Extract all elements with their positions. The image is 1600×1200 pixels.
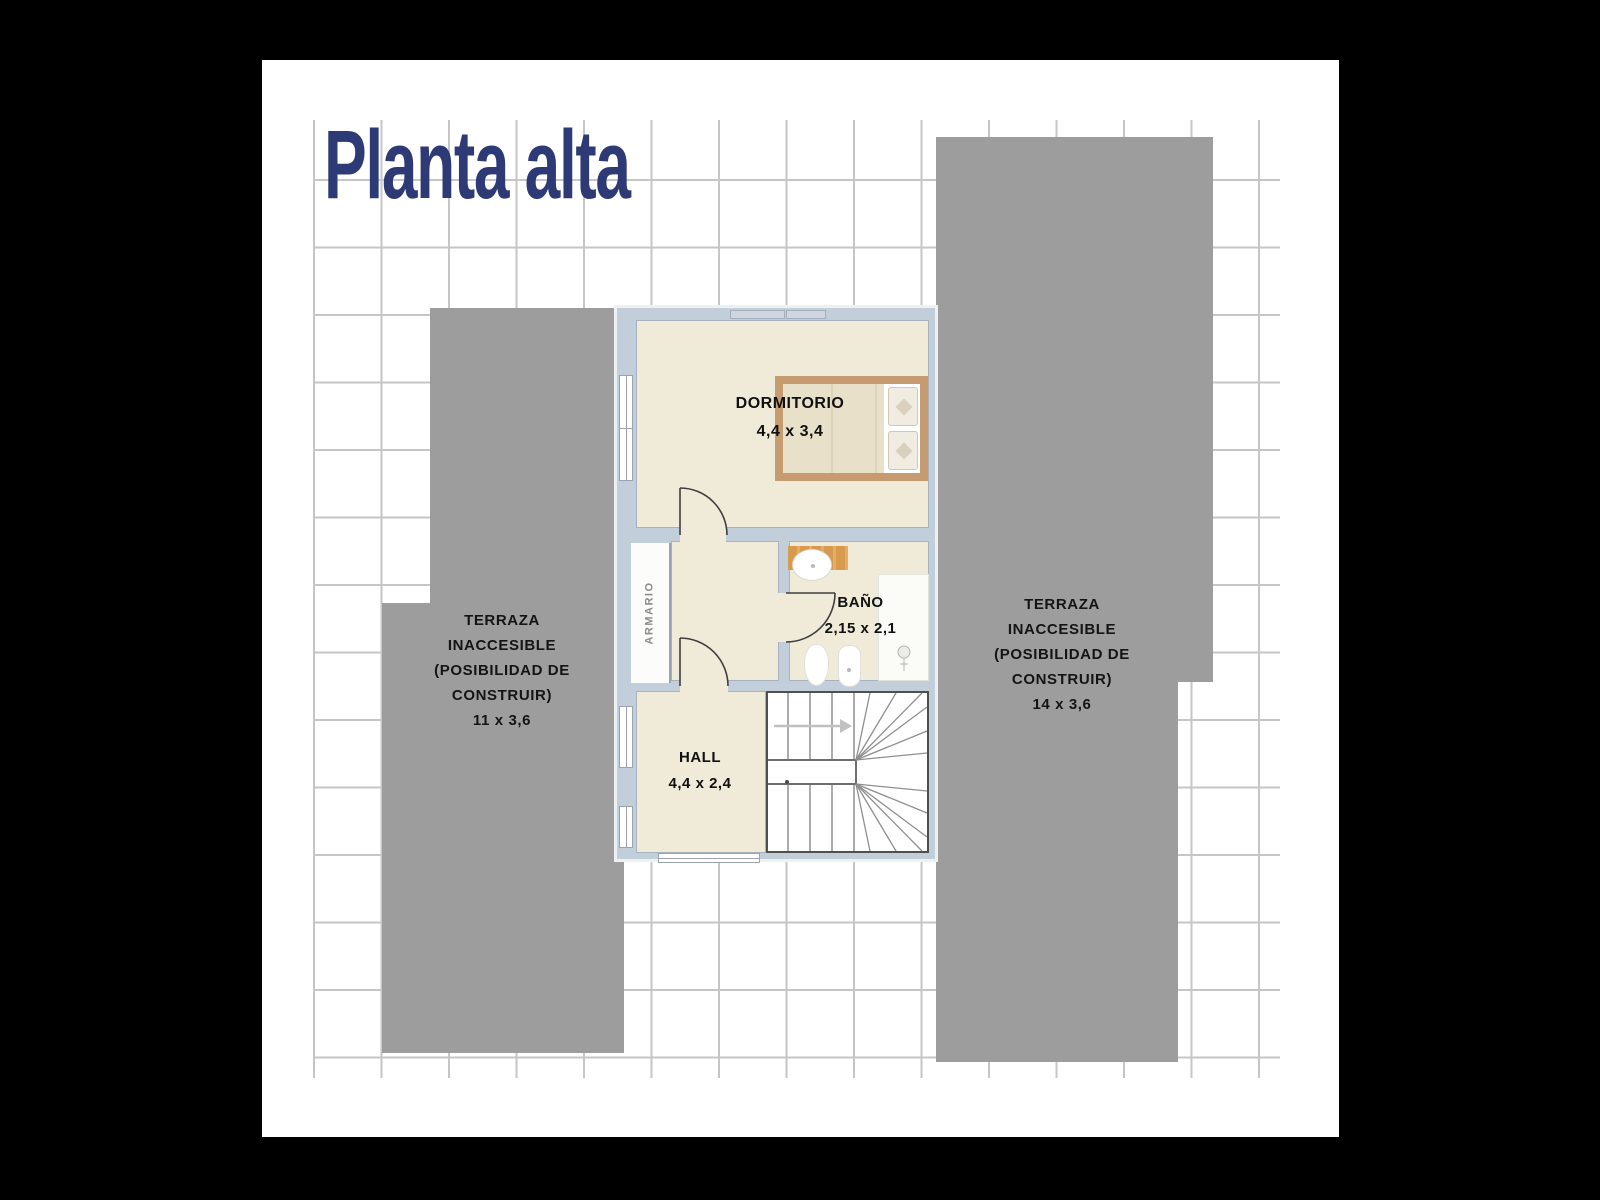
- staircase: [766, 691, 929, 853]
- staircase-drawing: [768, 693, 927, 851]
- terrace-left-line3: (POSIBILIDAD DE: [402, 658, 602, 683]
- terrace-right-line1: TERRAZA: [952, 592, 1172, 617]
- terrace-left-line4: CONSTRUIR): [402, 683, 602, 708]
- bano-dims: 2,15 x 2,1: [798, 616, 923, 642]
- armario-label: ARMARIO: [644, 581, 656, 644]
- floor-plan: ARMARIO: [614, 305, 938, 862]
- terrace-right-line2: INACCESIBLE: [952, 617, 1172, 642]
- pillow-icon: [888, 387, 918, 426]
- plan-sheet: Planta alta TERRAZA INACCESIBLE (POSIBIL…: [262, 60, 1339, 1137]
- terrace-right-line4: CONSTRUIR): [952, 667, 1172, 692]
- dormitorio-window: [619, 375, 633, 481]
- bed-fold-line: [875, 384, 877, 473]
- page-title: Planta alta: [324, 116, 630, 213]
- terrace-left-dims: 11 x 3,6: [402, 708, 602, 733]
- bidet-icon: [838, 645, 861, 687]
- stairs-direction-arrow-icon: [774, 719, 852, 733]
- top-wall-window-mark: [786, 310, 826, 319]
- terrace-left-label: TERRAZA INACCESIBLE (POSIBILIDAD DE CONS…: [402, 608, 602, 733]
- dormitorio-door-opening: [680, 527, 726, 543]
- terrace-left-line1: TERRAZA: [402, 608, 602, 633]
- terrace-right-label: TERRAZA INACCESIBLE (POSIBILIDAD DE CONS…: [952, 592, 1172, 717]
- sink-icon: [792, 549, 832, 581]
- toilet-icon: [804, 644, 829, 686]
- hall-name: HALL: [640, 745, 760, 771]
- hall-window-upper: [619, 706, 633, 768]
- stair-point-marker: [785, 780, 789, 784]
- bano-name: BAÑO: [798, 590, 923, 616]
- hall-door-opening: [680, 680, 728, 693]
- hall-label: HALL 4,4 x 2,4: [640, 745, 760, 797]
- bed-sheet-zone: [884, 384, 920, 473]
- bano-label: BAÑO 2,15 x 2,1: [798, 590, 923, 642]
- terrace-right-lower: [936, 682, 1178, 1062]
- dormitorio-name: DORMITORIO: [710, 390, 870, 418]
- hall-window-lower: [619, 806, 633, 848]
- terrace-right-line3: (POSIBILIDAD DE: [952, 642, 1172, 667]
- terrace-left-line2: INACCESIBLE: [402, 633, 602, 658]
- hall-bottom-window: [658, 853, 760, 863]
- hall-dims: 4,4 x 2,4: [640, 771, 760, 797]
- dormitorio-label: DORMITORIO 4,4 x 3,4: [710, 390, 870, 446]
- armario-closet: ARMARIO: [631, 543, 671, 683]
- terrace-right-dims: 14 x 3,6: [952, 692, 1172, 717]
- dormitorio-dims: 4,4 x 3,4: [710, 418, 870, 446]
- top-wall-window-mark: [730, 310, 785, 319]
- pillow-icon: [888, 431, 918, 470]
- landing-floor: [671, 541, 779, 681]
- bano-door-opening: [778, 593, 791, 642]
